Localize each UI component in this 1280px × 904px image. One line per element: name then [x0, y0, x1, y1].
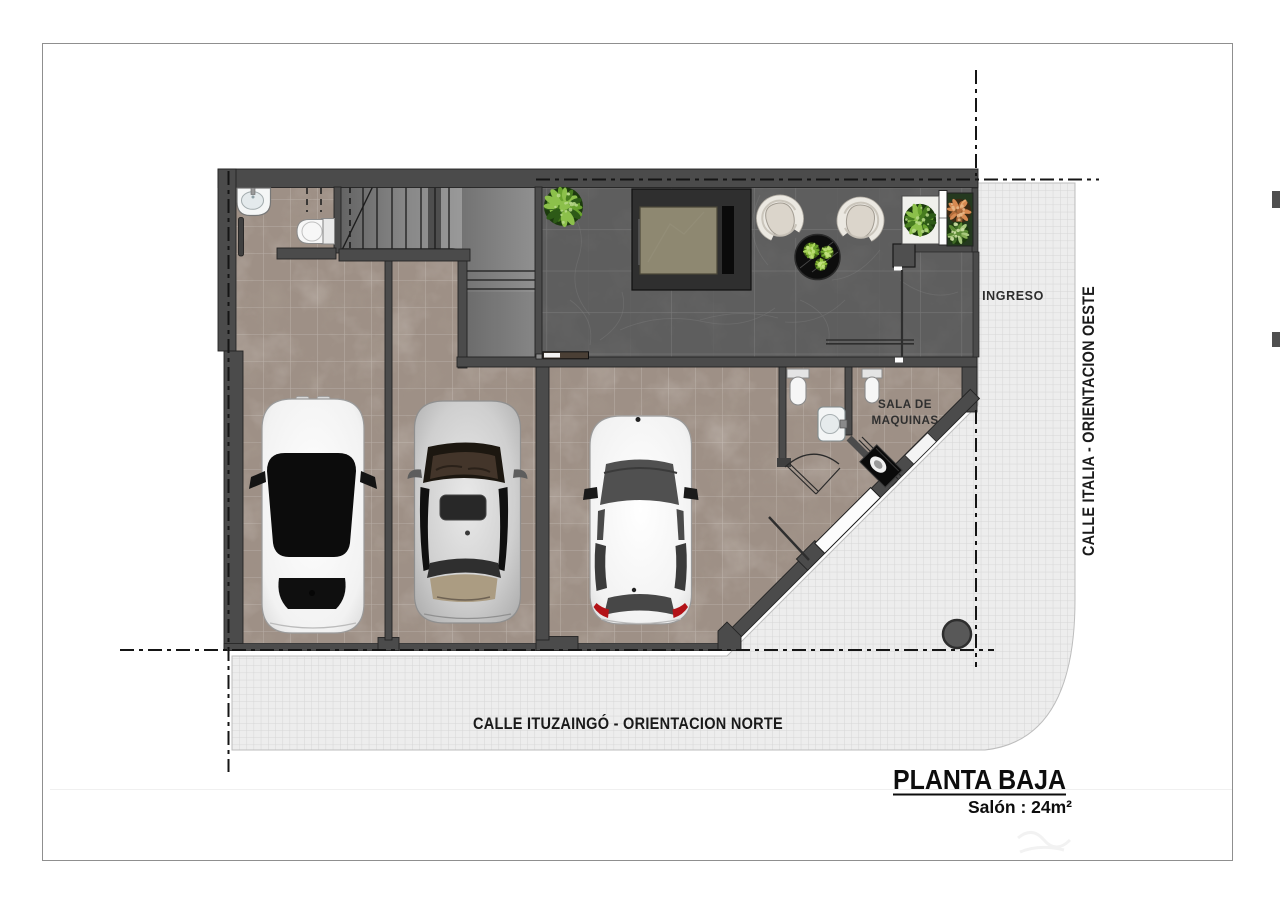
svg-text:MAQUINAS: MAQUINAS [871, 414, 938, 427]
svg-text:PLANTA BAJA: PLANTA BAJA [893, 764, 1066, 795]
svg-text:CALLE ITALIA - ORIENTACION OES: CALLE ITALIA - ORIENTACION OESTE [1080, 286, 1098, 556]
svg-text:CALLE ITUZAINGÓ - ORIENTACION: CALLE ITUZAINGÓ - ORIENTACION NORTE [473, 714, 783, 733]
svg-text:INGRESO: INGRESO [982, 289, 1044, 303]
svg-text:SALA DE: SALA DE [878, 398, 932, 411]
svg-text:Salón : 24m²: Salón : 24m² [968, 797, 1072, 817]
